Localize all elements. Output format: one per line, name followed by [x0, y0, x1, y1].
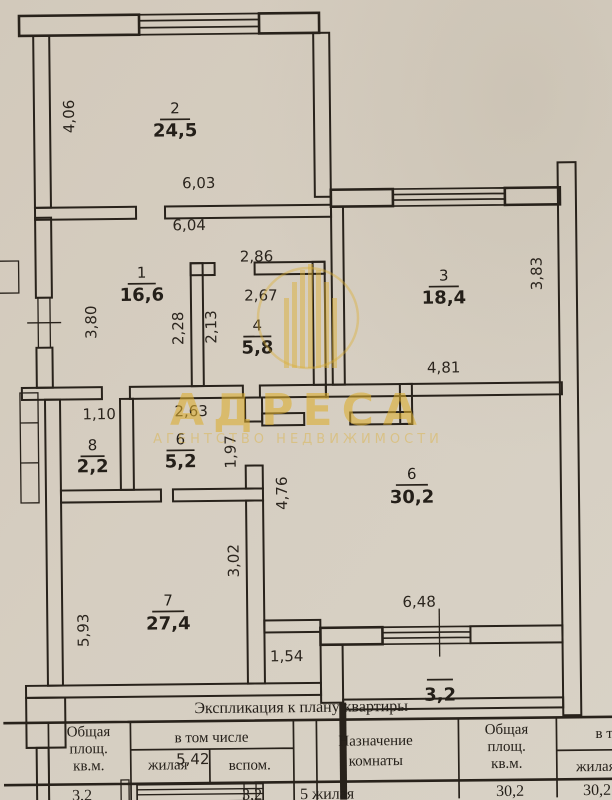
svg-text:27,4: 27,4 [146, 613, 191, 634]
svg-text:3,83: 3,83 [528, 257, 546, 291]
svg-text:30,2: 30,2 [496, 783, 524, 800]
svg-text:3: 3 [439, 267, 449, 285]
svg-text:Общая: Общая [485, 722, 529, 738]
svg-text:площ.: площ. [69, 741, 107, 757]
svg-text:3,80: 3,80 [82, 305, 100, 339]
svg-text:18,4: 18,4 [422, 287, 467, 308]
svg-text:2: 2 [170, 99, 180, 117]
svg-text:Общая: Общая [67, 724, 111, 740]
svg-text:7: 7 [163, 591, 173, 609]
scanned-floorplan-page: 224,5 116,6 45,8 318,4 82,2 65,2 630,2 7… [0, 0, 612, 800]
svg-text:3,2: 3,2 [72, 787, 92, 800]
explication-title: Экспликация к плану квартиры [194, 698, 408, 717]
svg-text:кв.м.: кв.м. [491, 756, 523, 772]
watermark-tagline: АГЕНТСТВО НЕДВИЖИМОСТИ [153, 432, 443, 447]
svg-text:1,54: 1,54 [270, 647, 304, 665]
svg-text:5,2: 5,2 [165, 451, 197, 472]
floorplan-svg: 224,5 116,6 45,8 318,4 82,2 65,2 630,2 7… [0, 0, 612, 800]
svg-text:1: 1 [137, 264, 147, 282]
svg-text:жилая: жилая [147, 757, 188, 773]
svg-text:5 жилая: 5 жилая [300, 786, 355, 800]
svg-text:1,10: 1,10 [82, 405, 116, 423]
svg-text:3,02: 3,02 [225, 544, 243, 578]
svg-text:4,76: 4,76 [273, 476, 291, 510]
svg-text:5,93: 5,93 [74, 614, 92, 648]
svg-text:жилая: жилая [575, 759, 612, 775]
svg-text:2,28: 2,28 [169, 312, 187, 346]
svg-text:6,04: 6,04 [172, 216, 206, 234]
svg-text:4,06: 4,06 [60, 100, 78, 134]
svg-text:6,48: 6,48 [402, 593, 436, 611]
svg-text:6: 6 [407, 465, 417, 483]
svg-text:вспом.: вспом. [229, 757, 271, 773]
svg-text:30,2: 30,2 [583, 782, 611, 799]
svg-text:кв.м.: кв.м. [73, 758, 105, 774]
svg-text:в т: в т [595, 726, 612, 742]
svg-text:8: 8 [88, 436, 98, 454]
svg-text:3,2: 3,2 [242, 786, 262, 800]
svg-text:в том числе: в том числе [174, 730, 249, 747]
svg-text:2,2: 2,2 [77, 456, 109, 477]
svg-text:30,2: 30,2 [390, 487, 435, 508]
svg-text:24,5: 24,5 [153, 120, 198, 141]
svg-text:площ.: площ. [487, 739, 525, 755]
svg-text:2,13: 2,13 [202, 310, 220, 344]
svg-text:2,86: 2,86 [240, 247, 274, 265]
svg-text:4,81: 4,81 [427, 358, 461, 376]
svg-text:комнаты: комнаты [349, 753, 403, 770]
svg-text:3,2: 3,2 [424, 684, 456, 705]
svg-text:Назначение: Назначение [338, 733, 413, 750]
svg-text:16,6: 16,6 [120, 284, 165, 305]
watermark-brand: АДРЕСА [170, 385, 426, 436]
svg-text:6,03: 6,03 [182, 174, 216, 192]
